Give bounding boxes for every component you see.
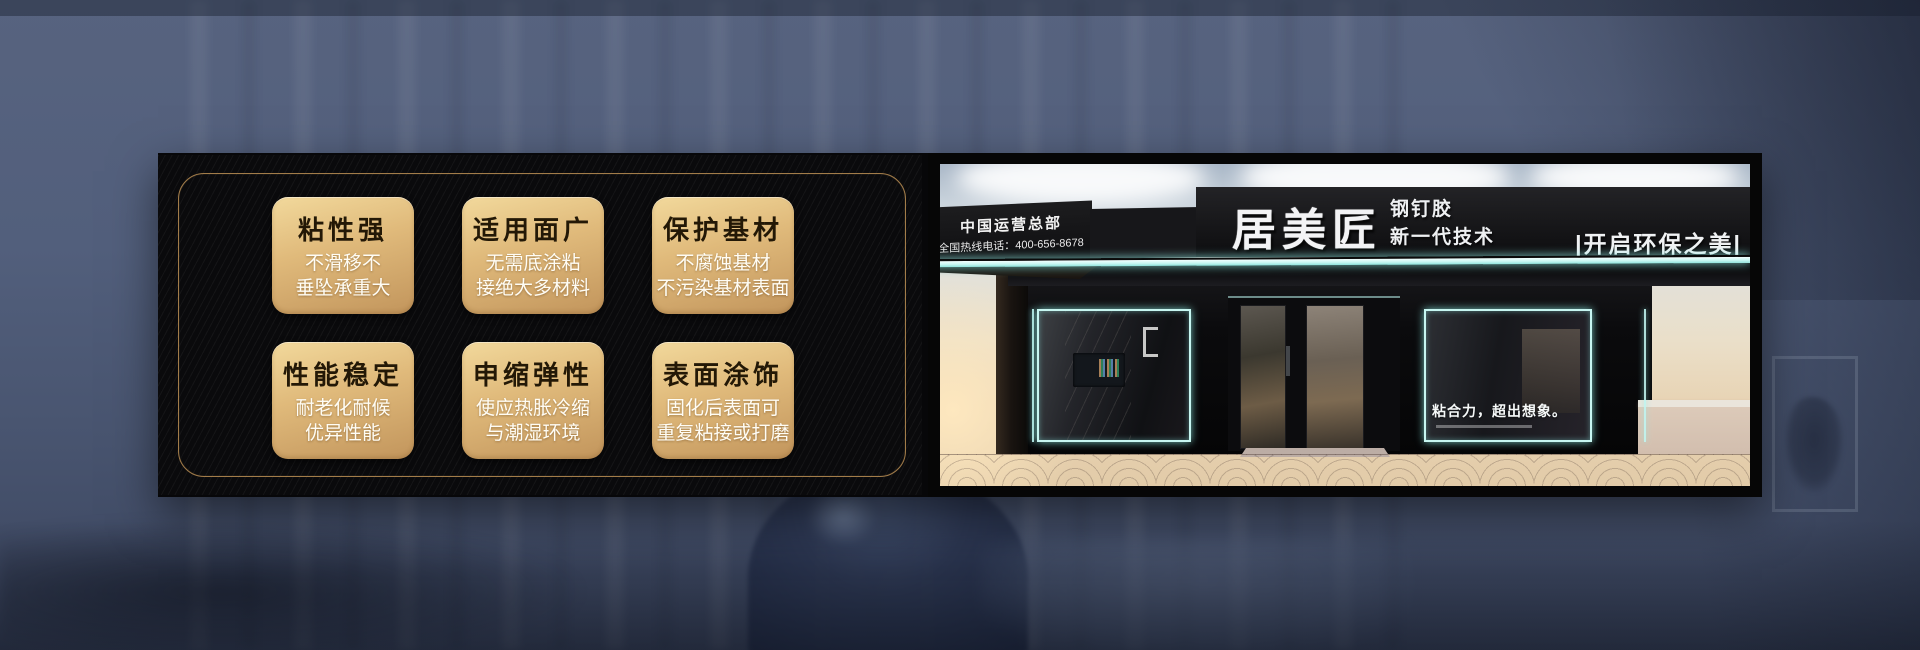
interior-screen [1073,353,1125,387]
door-glass-left [1240,305,1286,449]
feature-title: 申缩弹性 [473,355,593,392]
feature-subtitle: 无需底涂粘 接绝大多材料 [476,252,590,301]
feature-subtitle: 使应热胀冷缩 与潮湿环境 [476,397,590,446]
main-sign-band: 居美匠 钢钉胶 新一代技术 |开启环保之美| [1196,187,1750,257]
background-picture-frame [1772,356,1858,512]
display-window-left [1037,309,1191,442]
feature-subtitle-line1: 使应热胀冷缩 [476,397,590,422]
promo-banner: 粘性强 不滑移不 垂坠承重大 适用面广 无需底涂粘 接绝大多材料 保护基材 [158,153,1762,497]
feature-subtitle-line2: 垂坠承重大 [295,277,390,302]
corner-neon-left [1032,309,1034,442]
sand-ground [1638,407,1750,454]
feature-title: 性能稳定 [283,355,403,392]
building-canopy [1008,263,1750,286]
brand-product-text: 钢钉胶 新一代技术 [1390,196,1495,251]
feature-subtitle-line1: 固化后表面可 [656,397,789,422]
product-name-text: 钢钉胶 [1390,196,1495,224]
feature-title: 粘性强 [298,210,388,247]
sign-band-step [1090,207,1200,259]
feature-subtitle-line2: 与潮湿环境 [476,422,590,447]
window-slogan-text: 粘合力，超出想象。 [1432,401,1567,421]
feature-card-2: 适用面广 无需底涂粘 接绝大多材料 [462,197,604,314]
window-small-print [1436,425,1532,428]
feature-card-1: 粘性强 不滑移不 垂坠承重大 [272,197,414,314]
feature-subtitle-line1: 不腐蚀基材 [656,252,789,277]
feature-card-5: 申缩弹性 使应热胀冷缩 与潮湿环境 [462,342,604,459]
feature-subtitle-line1: 不滑移不 [295,252,390,277]
hq-sign-band: 中国运营总部 全国热线电话：400-656-8678 [940,200,1092,265]
eco-slogan-text: |开启环保之美| [1575,225,1742,259]
feature-subtitle-line2: 重复粘接或打磨 [656,422,789,447]
entrance-door [1228,296,1400,451]
feature-subtitle-line2: 接绝大多材料 [476,277,590,302]
screen-content [1099,359,1119,377]
interior-logo-mark [1143,327,1158,357]
door-handle [1286,346,1290,376]
banner-scene: 粘性强 不滑移不 垂坠承重大 适用面广 无需底涂粘 接绝大多材料 保护基材 [0,0,1920,650]
feature-title: 表面涂饰 [663,355,783,392]
feature-title: 保护基材 [663,210,783,247]
feature-card-grid: 粘性强 不滑移不 垂坠承重大 适用面广 无需底涂粘 接绝大多材料 保护基材 [272,197,794,459]
door-glass-right [1306,305,1364,449]
feature-subtitle: 耐老化耐候 优异性能 [295,397,390,446]
feature-card-6: 表面涂饰 固化后表面可 重复粘接或打磨 [652,342,794,459]
hotline-text: 全国热线电话：400-656-8678 [940,233,1084,255]
tech-line-text: 新一代技术 [1390,224,1495,252]
feature-subtitle-line1: 无需底涂粘 [476,252,590,277]
features-panel: 粘性强 不滑移不 垂坠承重大 适用面广 无需底涂粘 接绝大多材料 保护基材 [158,155,922,495]
feature-subtitle: 固化后表面可 重复粘接或打磨 [656,397,789,446]
pavement [940,454,1750,486]
storefront-scene: 粘合力，超出想象。 中国运营总部 全国热线电话：400-656-8678 居美匠… [940,164,1750,486]
feature-subtitle-line2: 优异性能 [295,422,390,447]
feature-card-4: 性能稳定 耐老化耐候 优异性能 [272,342,414,459]
storefront-photo: 粘合力，超出想象。 中国运营总部 全国热线电话：400-656-8678 居美匠… [928,153,1762,497]
feature-subtitle: 不滑移不 垂坠承重大 [295,252,390,301]
hq-label-text: 中国运营总部 [960,211,1062,236]
feature-subtitle-line1: 耐老化耐候 [295,397,390,422]
feature-card-3: 保护基材 不腐蚀基材 不污染基材表面 [652,197,794,314]
cloud [956,164,1206,206]
background-bottom-shade [0,520,1920,650]
display-window-right: 粘合力，超出想象。 [1424,309,1592,442]
feature-title: 适用面广 [473,210,593,247]
side-rail [1638,400,1750,407]
feature-subtitle-line2: 不污染基材表面 [656,277,789,302]
background-plant-silhouette [1785,397,1843,492]
brand-name-text: 居美匠 [1232,194,1382,258]
corner-neon-right [1644,309,1646,442]
feature-subtitle: 不腐蚀基材 不污染基材表面 [656,252,789,301]
building-side-wall [996,260,1030,454]
